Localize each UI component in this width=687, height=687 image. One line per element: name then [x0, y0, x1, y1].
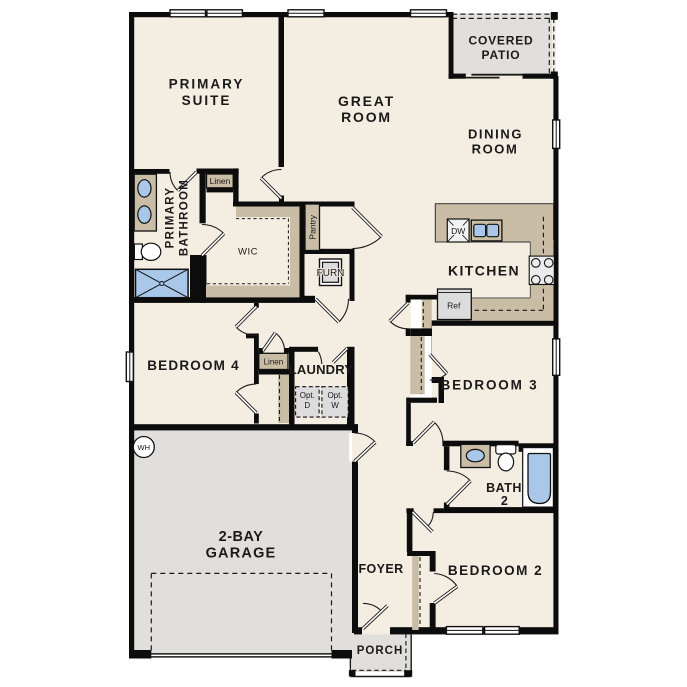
svg-text:Linen: Linen — [210, 176, 231, 186]
svg-text:DW: DW — [451, 226, 465, 236]
svg-text:GREAT: GREAT — [338, 93, 395, 109]
svg-text:Opt.: Opt. — [327, 391, 342, 400]
svg-text:BATH: BATH — [486, 481, 522, 495]
svg-text:KITCHEN: KITCHEN — [448, 263, 520, 279]
svg-text:D: D — [304, 401, 310, 410]
svg-text:ROOM: ROOM — [341, 109, 392, 125]
svg-text:PRIMARY: PRIMARY — [165, 187, 177, 249]
svg-text:Linen: Linen — [264, 358, 284, 367]
svg-text:PORCH: PORCH — [357, 645, 404, 657]
svg-text:2-BAY: 2-BAY — [219, 529, 264, 545]
svg-text:COVERED: COVERED — [469, 34, 534, 48]
svg-text:ROOM: ROOM — [472, 142, 519, 157]
svg-text:Pantry: Pantry — [308, 214, 318, 239]
svg-text:BEDROOM 3: BEDROOM 3 — [441, 378, 539, 393]
svg-text:BEDROOM 2: BEDROOM 2 — [448, 563, 543, 578]
svg-text:FOYER: FOYER — [358, 562, 403, 576]
svg-text:SUITE: SUITE — [182, 93, 232, 108]
svg-text:BEDROOM 4: BEDROOM 4 — [147, 358, 240, 373]
svg-text:FURN: FURN — [317, 268, 345, 279]
svg-text:GARAGE: GARAGE — [206, 546, 277, 562]
svg-text:2: 2 — [501, 494, 508, 508]
svg-text:PRIMARY: PRIMARY — [169, 77, 245, 92]
svg-text:DINING: DINING — [468, 127, 523, 142]
svg-text:Ref: Ref — [447, 301, 461, 311]
svg-text:WH: WH — [138, 443, 151, 452]
svg-text:WIC: WIC — [238, 247, 258, 258]
svg-text:W: W — [331, 401, 339, 410]
svg-text:Opt.: Opt. — [300, 391, 315, 400]
svg-text:PATIO: PATIO — [482, 48, 521, 62]
svg-text:BATHROOM: BATHROOM — [179, 179, 191, 256]
svg-text:LAUNDRY: LAUNDRY — [289, 362, 354, 377]
